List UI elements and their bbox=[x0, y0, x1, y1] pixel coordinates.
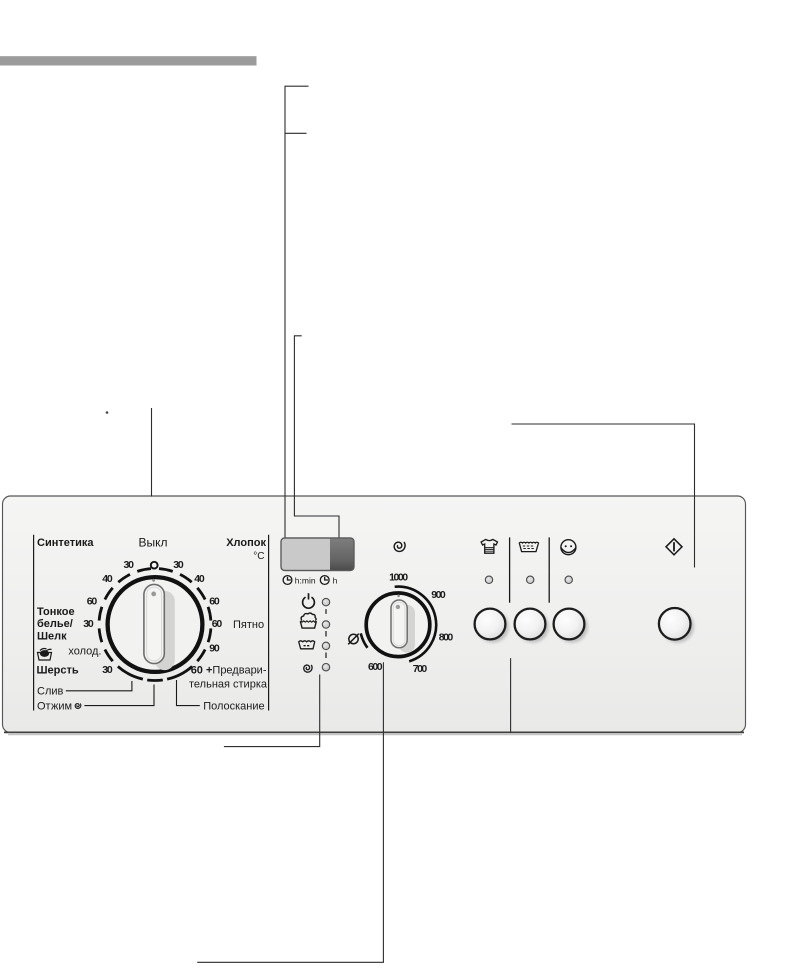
svg-text:60: 60 bbox=[87, 596, 98, 608]
svg-text:30: 30 bbox=[102, 664, 113, 676]
svg-text:Хлопок: Хлопок bbox=[226, 537, 266, 549]
svg-text:Пятно: Пятно bbox=[233, 619, 264, 631]
svg-text:Тонкое: Тонкое bbox=[37, 606, 75, 618]
svg-text:1000: 1000 bbox=[389, 571, 408, 583]
svg-text:Отжим: Отжим bbox=[37, 700, 72, 712]
svg-text:60: 60 bbox=[212, 618, 223, 630]
svg-text:40: 40 bbox=[194, 573, 205, 585]
svg-text:Слив: Слив bbox=[37, 686, 64, 698]
svg-text:30: 30 bbox=[123, 559, 134, 571]
svg-text:Шерсть: Шерсть bbox=[37, 665, 79, 677]
svg-text:холод.: холод. bbox=[68, 646, 101, 658]
svg-text:30: 30 bbox=[83, 618, 94, 630]
svg-text:60: 60 bbox=[209, 596, 220, 608]
svg-text:Выкл: Выкл bbox=[138, 536, 167, 550]
svg-text:90: 90 bbox=[209, 643, 220, 655]
svg-text:h:min: h:min bbox=[295, 575, 316, 585]
svg-text:°C: °C bbox=[253, 551, 264, 562]
svg-text:h: h bbox=[333, 575, 338, 585]
svg-text:тельная стирка: тельная стирка bbox=[189, 678, 268, 690]
svg-text:800: 800 bbox=[439, 632, 454, 644]
svg-text:600: 600 bbox=[368, 661, 383, 673]
svg-text:30: 30 bbox=[173, 559, 184, 571]
svg-text:Полоскание: Полоскание bbox=[203, 700, 264, 712]
svg-text:40: 40 bbox=[102, 573, 113, 585]
svg-text:Шелк: Шелк bbox=[37, 630, 67, 642]
svg-text:Синтетика: Синтетика bbox=[37, 537, 94, 549]
svg-text:60 +Предвари-: 60 +Предвари- bbox=[191, 664, 267, 676]
svg-text:900: 900 bbox=[431, 589, 446, 601]
svg-text:белье/: белье/ bbox=[37, 618, 73, 630]
svg-text:700: 700 bbox=[413, 663, 428, 675]
